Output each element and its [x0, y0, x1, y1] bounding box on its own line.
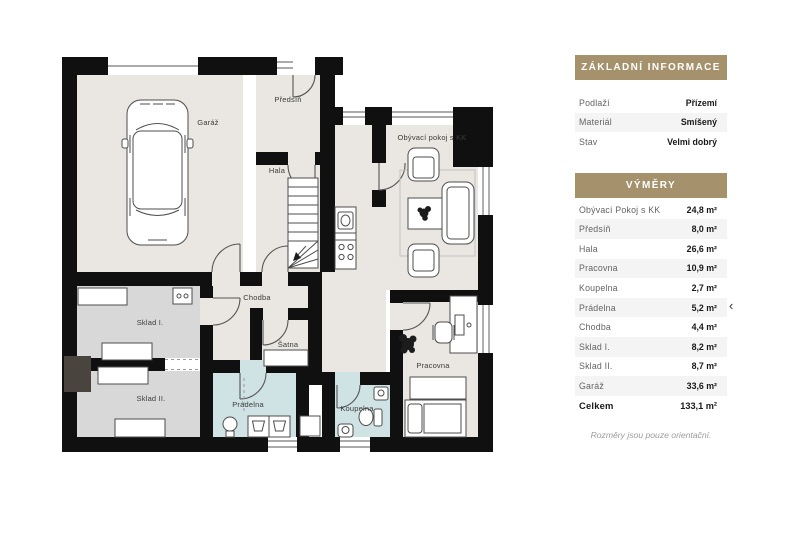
area-value: 10,9 m²: [687, 263, 717, 273]
sofa: [442, 182, 474, 244]
area-label: Pracovna: [579, 263, 618, 273]
info-panel: ZÁKLADNÍ INFORMACE Podlaží Přízemí Mater…: [575, 55, 727, 440]
office-chair: [433, 322, 454, 343]
desk: [450, 296, 477, 353]
staircase: [288, 178, 318, 268]
washer-icon: [269, 416, 290, 437]
area-row: Předsíň 8,0 m²: [575, 219, 727, 239]
basic-info-table: ZÁKLADNÍ INFORMACE Podlaží Přízemí Mater…: [575, 55, 727, 152]
area-row: Chodba 4,4 m²: [575, 317, 727, 337]
area-row: Garáž 33,6 m²: [575, 376, 727, 396]
area-value: 8,2 m²: [692, 342, 717, 352]
area-value: 24,8 m²: [687, 205, 717, 215]
basic-info-header: ZÁKLADNÍ INFORMACE: [575, 55, 727, 80]
info-row: Stav Velmi dobrý: [575, 132, 727, 152]
areas-header: VÝMĚRY: [575, 173, 727, 198]
area-label: Koupelna: [579, 283, 618, 293]
area-row: Pracovna 10,9 m²: [575, 259, 727, 279]
info-label: Stav: [579, 137, 597, 147]
kitchen-counter: [335, 207, 356, 269]
room-label-sklad1: Sklad I.: [137, 318, 164, 327]
washer-icon: [248, 416, 269, 437]
area-row: Prádelna 5,2 m²: [575, 298, 727, 318]
cabinet: [410, 377, 466, 399]
info-row: Materiál Smíšený: [575, 113, 727, 133]
sink-icon: [338, 424, 353, 437]
area-value: 2,7 m²: [692, 283, 717, 293]
shelf: [102, 343, 152, 360]
area-value: 26,6 m²: [687, 244, 717, 254]
area-row: Koupelna 2,7 m²: [575, 278, 727, 298]
chimney: [64, 356, 91, 392]
area-row: Hala 26,6 m²: [575, 239, 727, 259]
area-label: Předsíň: [579, 224, 611, 234]
info-row: Podlaží Přízemí: [575, 93, 727, 113]
info-value: Smíšený: [681, 117, 717, 127]
total-value: 133,1 m²: [680, 401, 717, 411]
total-label: Celkem: [579, 400, 614, 411]
area-value: 8,7 m²: [692, 361, 717, 371]
disclaimer-note: Rozměry jsou pouze orientační.: [575, 430, 727, 440]
info-value: Přízemí: [686, 98, 717, 108]
room-label-chodba: Chodba: [243, 293, 271, 302]
area-label: Chodba: [579, 322, 611, 332]
floor-plan: Garáž Předsíň Hala Obývací pokoj s KK Ch…: [0, 0, 560, 533]
shelf: [115, 419, 165, 437]
area-label: Hala: [579, 244, 598, 254]
total-row: Celkem 133,1 m²: [575, 396, 727, 416]
boiler-icon: [173, 288, 192, 304]
area-row: Sklad I. 8,2 m²: [575, 337, 727, 357]
shelf: [78, 288, 127, 305]
room-label-hala: Hala: [269, 166, 286, 175]
area-label: Prádelna: [579, 303, 616, 313]
bed: [405, 400, 466, 437]
page: Garáž Předsíň Hala Obývací pokoj s KK Ch…: [0, 0, 800, 533]
utility-door-leaf: [300, 416, 320, 436]
area-value: 8,0 m²: [692, 224, 717, 234]
shelf: [98, 367, 148, 384]
area-row: Sklad II. 8,7 m²: [575, 357, 727, 377]
area-value: 33,6 m²: [687, 381, 717, 391]
area-row: Obývací Pokoj s KK 24,8 m²: [575, 200, 727, 220]
armchair: [408, 244, 439, 277]
area-value: 5,2 m²: [692, 303, 717, 313]
armchair: [408, 148, 439, 181]
room-label-predsin: Předsíň: [274, 95, 301, 104]
area-label: Garáž: [579, 381, 604, 391]
room-label-pracovna: Pracovna: [416, 361, 450, 370]
room-label-obyvaci: Obývací pokoj s KK: [397, 133, 466, 142]
area-label: Obývací Pokoj s KK: [579, 205, 660, 215]
area-value: 4,4 m²: [692, 322, 717, 332]
area-label: Sklad I.: [579, 342, 610, 352]
coffee-table: [408, 198, 442, 229]
room-label-satna: Šatna: [278, 340, 299, 349]
room-label-sklad2: Sklad II.: [137, 394, 166, 403]
info-value: Velmi dobrý: [667, 137, 717, 147]
areas-table: VÝMĚRY Obývací Pokoj s KK 24,8 m² Předsí…: [575, 173, 727, 441]
car-icon: [122, 100, 193, 245]
info-label: Materiál: [579, 117, 612, 127]
room-label-garaz: Garáž: [197, 118, 218, 127]
room-label-koupelna: Koupelna: [340, 404, 374, 413]
wardrobe-shelf: [264, 350, 308, 366]
storage-opening: [165, 358, 198, 371]
info-label: Podlaží: [579, 98, 610, 108]
carousel-prev-icon[interactable]: ‹: [729, 299, 733, 312]
area-label: Sklad II.: [579, 361, 613, 371]
washbasin-icon: [374, 387, 388, 400]
room-label-pradelna: Prádelna: [232, 400, 264, 409]
